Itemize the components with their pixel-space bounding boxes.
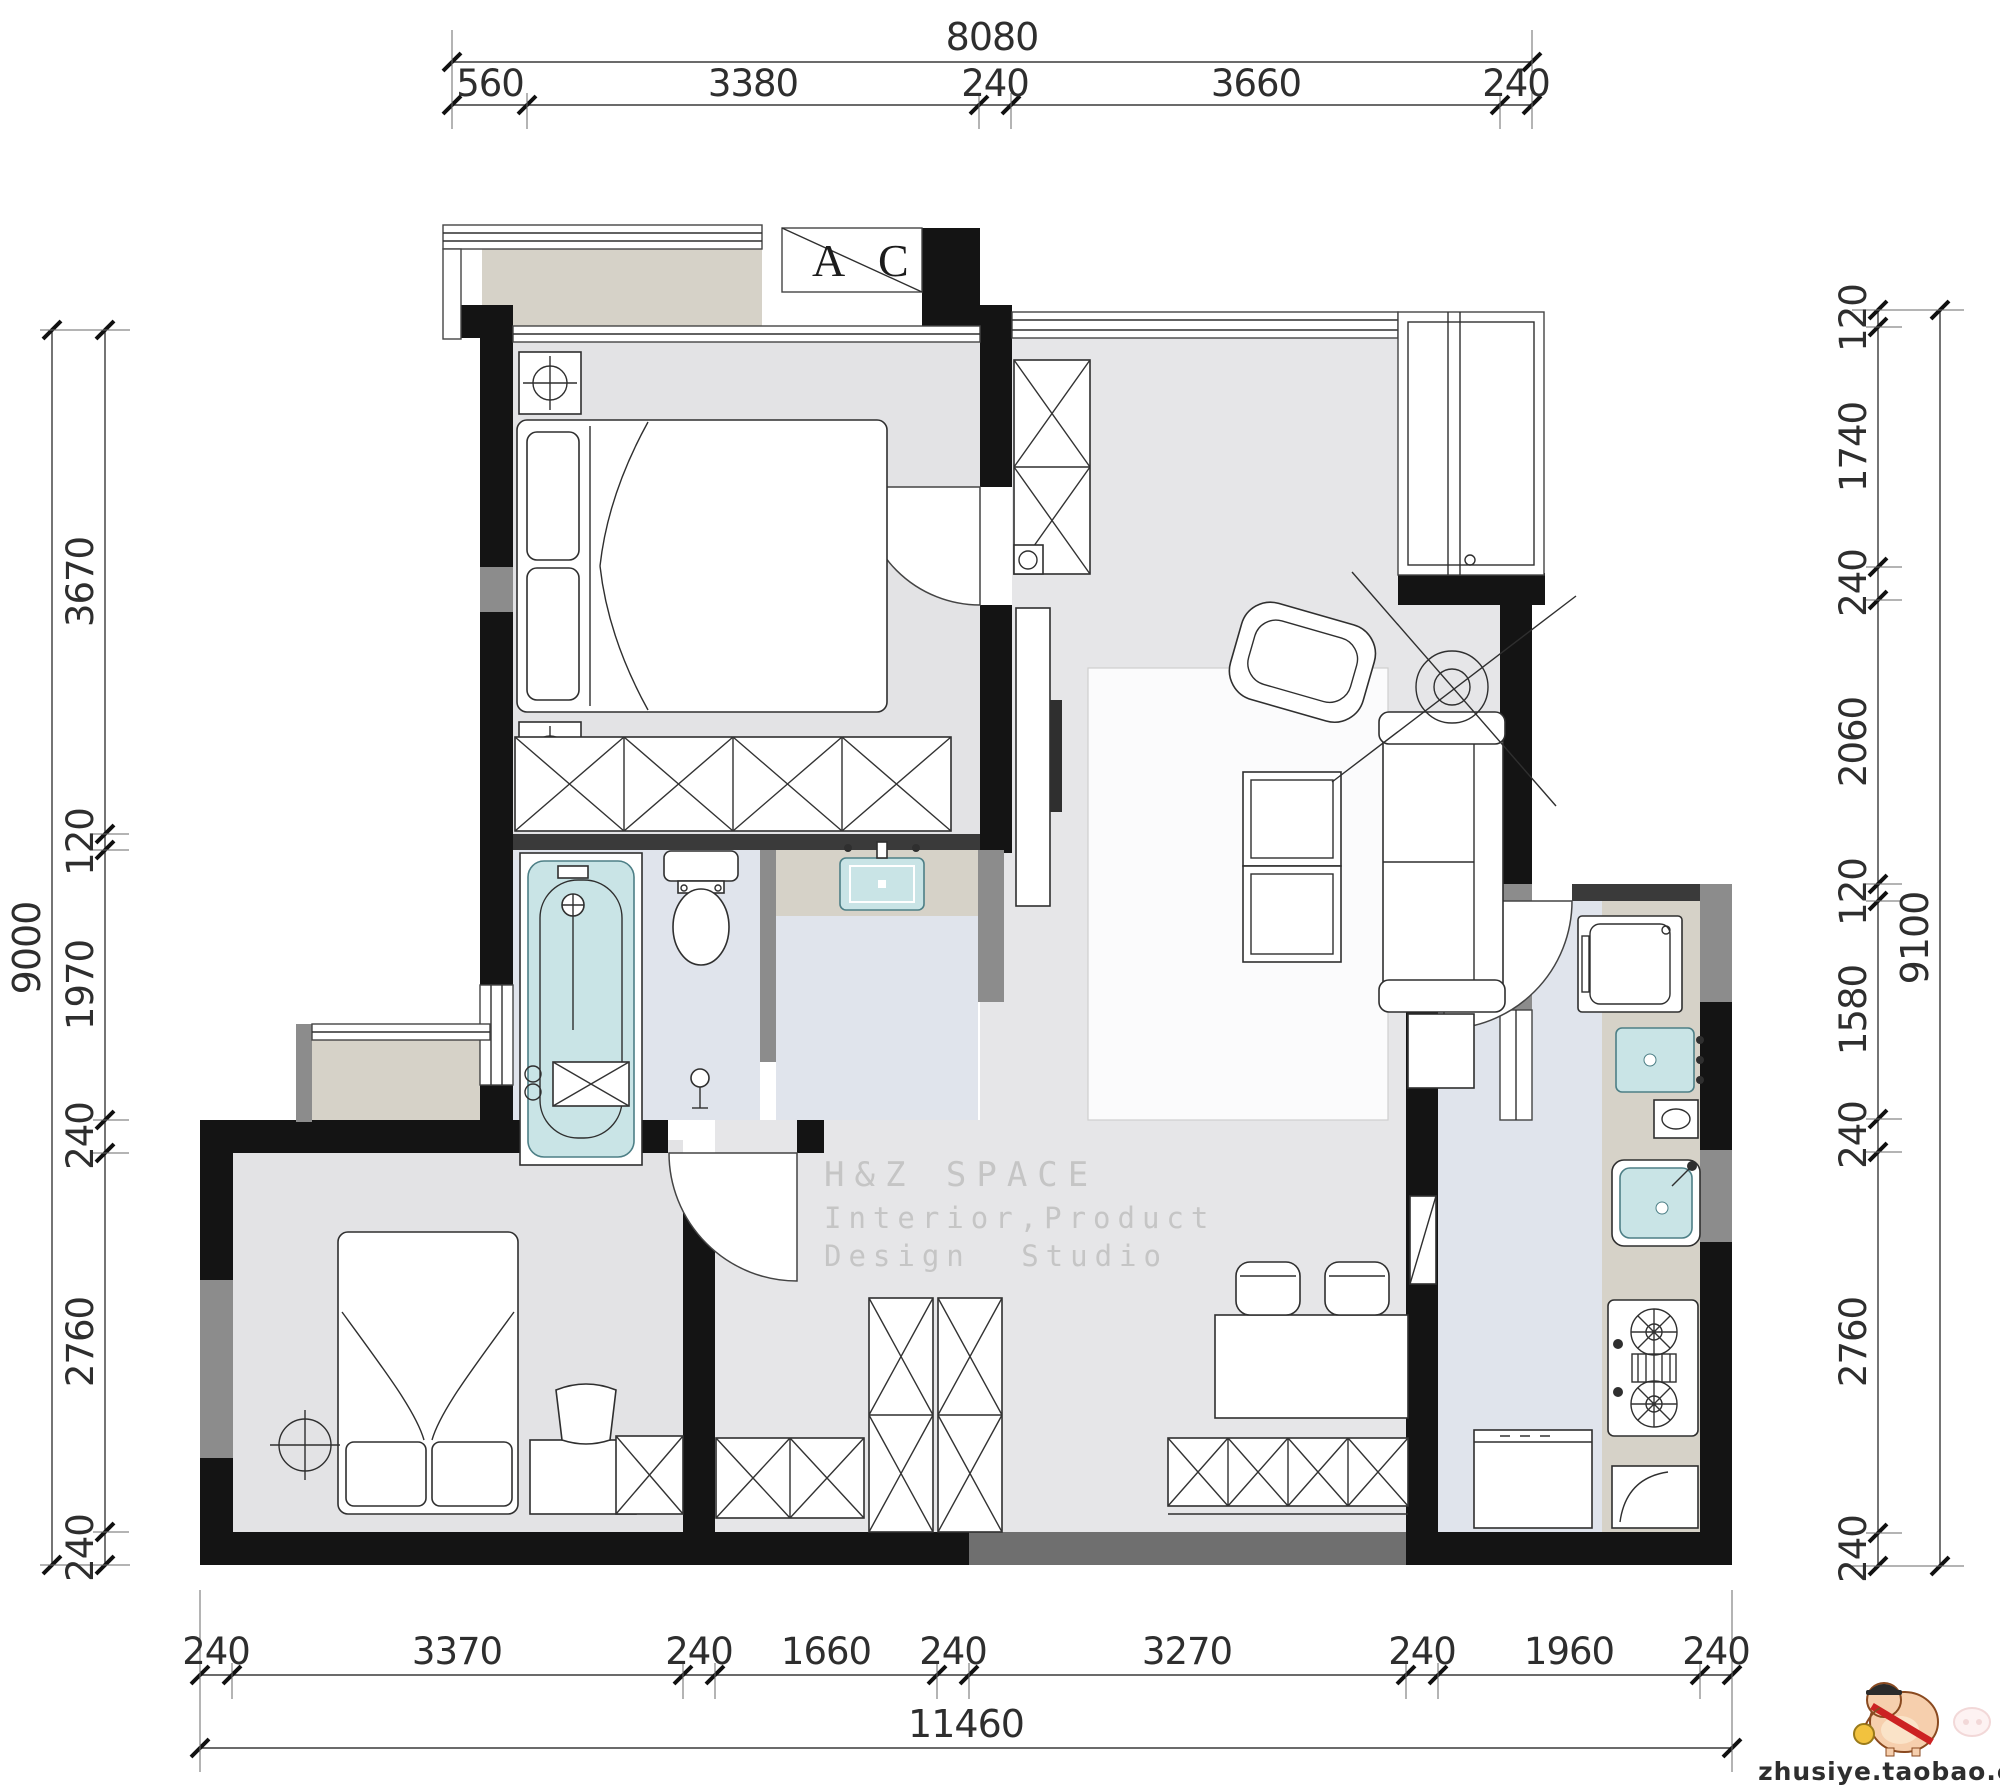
dim-label: 3370 (412, 1630, 502, 1673)
dim-label: 120 (59, 808, 102, 876)
dim-label: 3670 (59, 537, 102, 627)
washing-machine (1578, 916, 1682, 1012)
balcony-floor (482, 247, 762, 337)
desk-chair (556, 1384, 616, 1444)
refrigerator (1474, 1430, 1592, 1528)
kitchen-corner-unit (1612, 1466, 1698, 1528)
dim-label: 120 (1832, 284, 1875, 352)
sideboard (1168, 1438, 1408, 1514)
watermark-line-2: Interior,Product (824, 1201, 1215, 1235)
dim-label: 240 (961, 62, 1029, 105)
dim-label: 560 (456, 62, 524, 105)
mirror-panel (1410, 1196, 1436, 1284)
dim-left-total: 9000 (5, 902, 49, 995)
tall-closet (938, 1298, 1002, 1532)
bay-window-floor (312, 1038, 490, 1122)
master-bed (517, 420, 887, 712)
dim-label: 1960 (1524, 1630, 1614, 1673)
dim-label: 2760 (1832, 1297, 1875, 1387)
dim-label: 240 (1832, 1101, 1875, 1169)
window-letter-a: A (812, 235, 845, 286)
pass-through-window (1500, 1010, 1532, 1120)
utility-sink (1616, 1028, 1704, 1092)
dim-right-total: 9100 (1893, 892, 1937, 985)
sofa (1379, 712, 1505, 1012)
window-letter-c: C (878, 235, 909, 286)
dining-stool (1236, 1262, 1300, 1315)
dim-top-total: 8080 (946, 15, 1039, 59)
dim-label: 240 (665, 1630, 733, 1673)
dim-label: 3270 (1142, 1630, 1232, 1673)
kitchen-sink (1612, 1160, 1700, 1246)
taobao-shop-logo: zhusiye.taobao.com (1758, 1683, 2000, 1786)
bay-window (312, 1024, 490, 1040)
second-bed (338, 1232, 518, 1514)
dim-label: 240 (59, 1102, 102, 1170)
sofa-side-table (1408, 1014, 1474, 1088)
floor-plan-drawing: A C (0, 0, 2000, 1792)
dim-label: 1580 (1832, 965, 1875, 1055)
dim-bottom-total: 11460 (908, 1702, 1024, 1746)
dim-label: 240 (1482, 62, 1550, 105)
faint-snout-watermark (1954, 1708, 1990, 1736)
dim-label: 240 (919, 1630, 987, 1673)
utility-bin (1654, 1100, 1698, 1138)
floor-plan-sheet: A C (0, 0, 2000, 1792)
dim-label: 240 (1832, 549, 1875, 617)
tv-icon (1050, 700, 1062, 812)
vanity-floor (776, 916, 978, 1120)
entry-corner-window (1398, 312, 1544, 575)
dim-label: 2060 (1832, 697, 1875, 787)
master-wardrobe (515, 737, 951, 831)
dim-label: 240 (1388, 1630, 1456, 1673)
entry-cabinet (1014, 360, 1090, 574)
hall-closet (716, 1438, 864, 1518)
dim-label: 1660 (781, 1630, 871, 1673)
bathtub (520, 853, 642, 1165)
ac-platform-window: A C (782, 228, 922, 292)
dim-label: 240 (1832, 1515, 1875, 1583)
dim-label: 1740 (1832, 402, 1875, 492)
watermark-line-3: Design Studio (824, 1239, 1168, 1273)
coffee-table (1243, 772, 1341, 962)
dim-label: 240 (1682, 1630, 1750, 1673)
watermark-line-1: H&Z SPACE (824, 1155, 1098, 1195)
bedroom-cabinet (616, 1436, 683, 1514)
pig-mascot-icon (1854, 1683, 1938, 1756)
dim-label: 3660 (1211, 62, 1301, 105)
dining-stool (1325, 1262, 1389, 1315)
dim-label: 240 (59, 1514, 102, 1582)
dim-label: 2760 (59, 1297, 102, 1387)
living-rug (1088, 668, 1388, 1120)
balcony-sliding-door (513, 326, 980, 342)
dim-label: 3380 (708, 62, 798, 105)
logo-url-text: zhusiye.taobao.com (1758, 1757, 2000, 1786)
dim-label: 120 (1832, 858, 1875, 926)
stove (1608, 1300, 1698, 1436)
living-north-window (1012, 312, 1398, 338)
dim-label: 240 (182, 1630, 250, 1673)
dim-label: 1970 (59, 940, 102, 1030)
tall-closet (869, 1298, 933, 1532)
nightstand-lamp-icon (519, 352, 581, 414)
